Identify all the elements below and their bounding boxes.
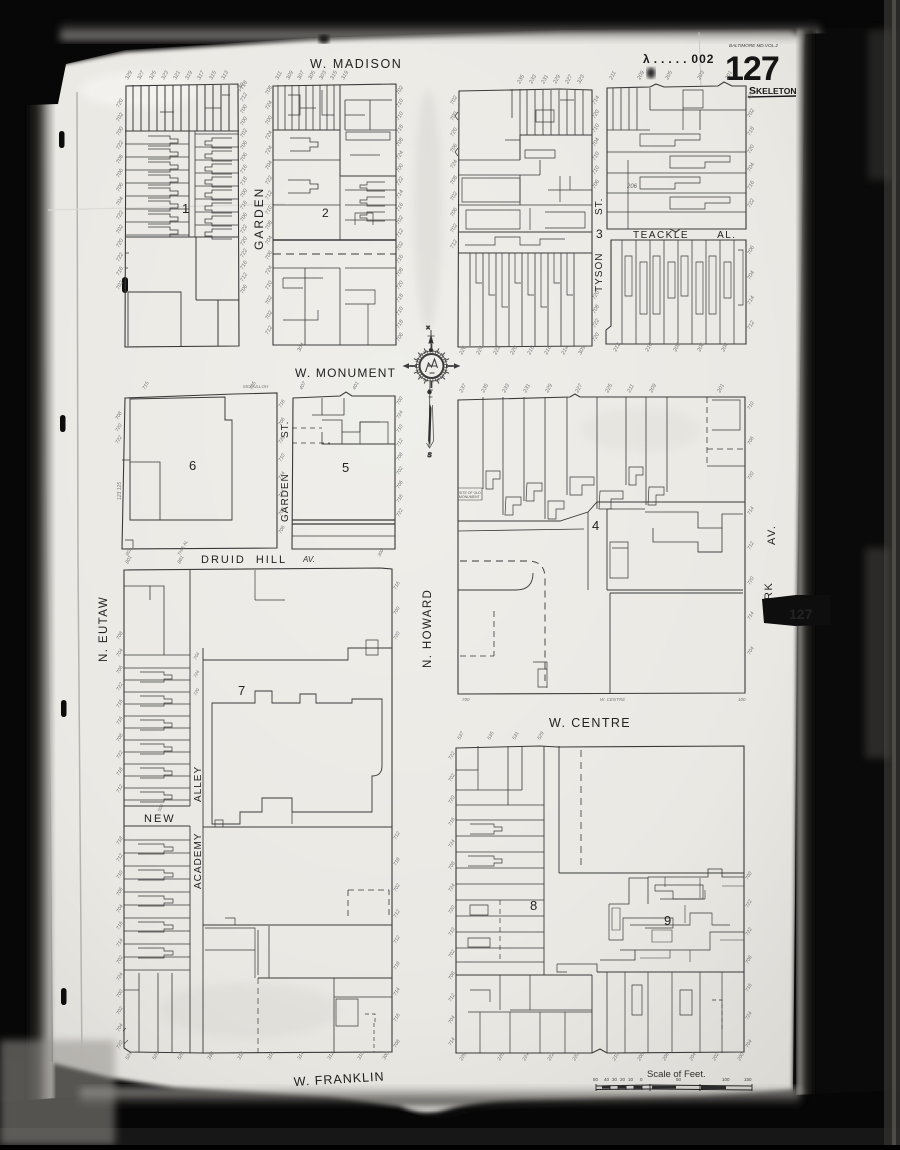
svg-text:10: 10 <box>628 1077 634 1082</box>
svg-text:700: 700 <box>462 697 470 702</box>
svg-text:206: 206 <box>626 184 638 190</box>
svg-text:3: 3 <box>596 227 603 241</box>
svg-text:30: 30 <box>612 1077 618 1082</box>
svg-text:150: 150 <box>744 1077 752 1082</box>
svg-text:TYSON: TYSON <box>594 253 605 292</box>
svg-text:6: 6 <box>189 458 196 473</box>
svg-text:MCCULLOH: MCCULLOH <box>243 384 269 389</box>
svg-text:W. CENTRE: W. CENTRE <box>549 716 631 730</box>
svg-text:50: 50 <box>593 1077 599 1082</box>
svg-text:4: 4 <box>592 518 599 533</box>
svg-text:123 125: 123 125 <box>117 482 123 500</box>
svg-text:MONUMENT: MONUMENT <box>459 495 480 499</box>
svg-text:8: 8 <box>530 898 537 913</box>
svg-text:DRUIDHILL: DRUIDHILL <box>201 554 287 566</box>
svg-text:TEACKLEAL.: TEACKLEAL. <box>633 230 737 241</box>
svg-text:SKELETON: SKELETON <box>749 85 796 97</box>
svg-text:20: 20 <box>620 1077 626 1082</box>
svg-text:AV.: AV. <box>302 555 315 564</box>
svg-text:40: 40 <box>604 1077 610 1082</box>
svg-text:NEW: NEW <box>144 813 176 825</box>
svg-text:1: 1 <box>182 201 189 216</box>
svg-text:ACADEMY: ACADEMY <box>193 833 204 889</box>
svg-text:ALLEY: ALLEY <box>193 766 204 802</box>
svg-text:λ.....002: λ.....002 <box>643 52 714 66</box>
svg-text:×: × <box>426 325 430 332</box>
svg-text:9: 9 <box>664 913 671 928</box>
svg-text:N. EUTAW: N. EUTAW <box>98 596 110 662</box>
svg-text:50: 50 <box>676 1077 682 1082</box>
svg-text:S: S <box>428 453 432 459</box>
svg-text:2: 2 <box>322 206 329 220</box>
svg-text:GARDEN: GARDEN <box>252 187 266 250</box>
svg-text:AV.: AV. <box>766 525 778 545</box>
svg-text:100: 100 <box>738 697 746 702</box>
svg-text:100: 100 <box>722 1077 730 1082</box>
svg-text:BALTIMORE MD.VOL.2: BALTIMORE MD.VOL.2 <box>729 43 778 48</box>
svg-text:127: 127 <box>725 50 779 88</box>
svg-text:127: 127 <box>789 606 813 622</box>
svg-text:N. HOWARD: N. HOWARD <box>422 589 434 668</box>
svg-text:W. MONUMENT: W. MONUMENT <box>295 366 396 380</box>
svg-text:RK: RK <box>763 582 775 600</box>
svg-text:W. MADISON: W. MADISON <box>310 57 402 71</box>
svg-text:ST.: ST. <box>594 198 605 215</box>
svg-text:W. CENTRE: W. CENTRE <box>600 697 626 702</box>
svg-text:7: 7 <box>238 683 245 698</box>
svg-text:5: 5 <box>342 460 349 475</box>
